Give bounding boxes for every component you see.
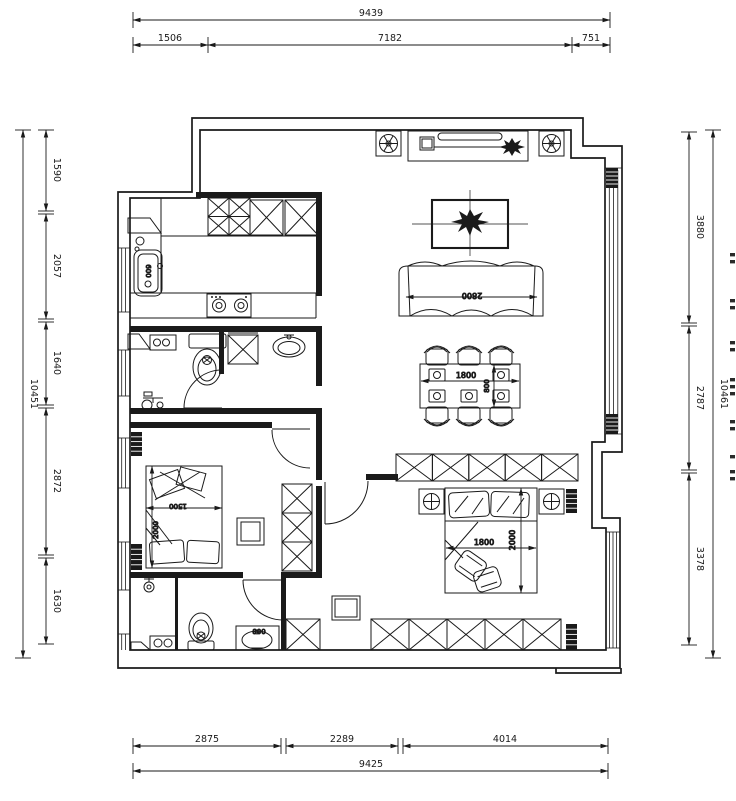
dim-top-overall: 9439 bbox=[359, 8, 383, 19]
kitchen-sink-label: 600 bbox=[144, 264, 152, 277]
dining-set: 1800 800 bbox=[420, 346, 520, 426]
tv-wall bbox=[376, 131, 564, 161]
floor-plan-page: 9439 1506 7182 751 2875 2289 4014 9425 1… bbox=[0, 0, 736, 801]
kitchen-cabinet-1 bbox=[250, 200, 283, 235]
radiator bbox=[566, 624, 577, 650]
window-master-bay bbox=[606, 532, 620, 648]
nightstand-right bbox=[539, 489, 564, 514]
sofa bbox=[399, 261, 543, 316]
dim-left-seg-3: 1640 bbox=[51, 351, 62, 375]
wall-kitchen-top bbox=[196, 192, 322, 198]
dimension-annotations-right: 3880 2787 3378 10461 bbox=[681, 130, 729, 658]
edge-text-fragments bbox=[730, 253, 735, 480]
bath2-corner-shelf bbox=[131, 642, 150, 650]
door-bathroom2 bbox=[243, 580, 283, 620]
dim-left-seg-1: 1590 bbox=[51, 158, 62, 182]
dim-left-seg-4: 2872 bbox=[51, 469, 62, 493]
wardrobe-box bbox=[282, 513, 312, 542]
wall-kitchen-living bbox=[316, 192, 322, 296]
dimension-annotations-bottom: 2875 2289 4014 9425 bbox=[133, 734, 608, 779]
kitchen-cabinet-2 bbox=[285, 200, 318, 235]
dim-right-seg-3: 3378 bbox=[694, 547, 705, 571]
master-wardrobe-bottom bbox=[371, 619, 561, 650]
dim-left-overall: 10451 bbox=[28, 379, 39, 409]
master-wardrobe-top bbox=[396, 454, 578, 481]
radiator bbox=[131, 432, 142, 456]
dining-width-label: 800 bbox=[483, 379, 491, 392]
radiator bbox=[566, 489, 577, 513]
dim-left-seg-2: 2057 bbox=[51, 254, 62, 278]
dim-left-seg-5: 1630 bbox=[51, 589, 62, 613]
bathroom-2: 800 bbox=[131, 576, 279, 650]
floor-plan-canvas: 9439 1506 7182 751 2875 2289 4014 9425 1… bbox=[0, 0, 736, 801]
wall-bedroom2-right bbox=[316, 486, 322, 578]
kitchen: 600 bbox=[128, 198, 318, 318]
dim-top-seg-1: 1506 bbox=[158, 33, 182, 44]
kitchen-stove bbox=[207, 294, 251, 317]
bed2-length-label: 2000 bbox=[152, 521, 160, 539]
plant-icon bbox=[451, 209, 489, 236]
dim-right-seg-1: 3880 bbox=[694, 215, 705, 239]
bath1-corner-shelf bbox=[128, 334, 150, 349]
wall-bedroom2-bath2-right bbox=[281, 572, 316, 578]
wardrobe-box bbox=[282, 484, 312, 513]
stool bbox=[332, 596, 360, 620]
interior-walls bbox=[130, 192, 398, 650]
sofa-width-label: 2800 bbox=[462, 291, 482, 300]
window-living-room bbox=[605, 168, 622, 434]
door-master-bedroom bbox=[325, 481, 368, 524]
bed2-width-label: 1500 bbox=[169, 502, 187, 510]
master-bed-width-label: 1800 bbox=[474, 538, 494, 547]
dimension-annotations-left: 10451 1590 2057 1640 2872 1630 bbox=[15, 130, 62, 658]
exterior-walls bbox=[118, 118, 622, 673]
wall-master-door-side bbox=[366, 474, 398, 480]
toilet-2 bbox=[188, 613, 214, 650]
wardrobe-box bbox=[282, 542, 312, 571]
wall-bath1-divider bbox=[219, 332, 224, 374]
dim-right-seg-2: 2787 bbox=[694, 386, 705, 410]
bath2-vanity-label: 800 bbox=[252, 628, 265, 636]
dim-bottom-seg-3: 4014 bbox=[493, 734, 517, 745]
wall-bath1-living bbox=[316, 332, 322, 386]
radiator bbox=[131, 544, 142, 570]
doors bbox=[184, 370, 368, 620]
dim-bottom-seg-1: 2875 bbox=[195, 734, 219, 745]
bath1-vanity-sink bbox=[273, 335, 305, 357]
door-bedroom2 bbox=[272, 429, 310, 468]
tv-icon bbox=[438, 133, 502, 140]
kitchen-cabinet-grid-bottom bbox=[208, 217, 250, 236]
cabinet-box bbox=[286, 619, 320, 650]
kitchen-cabinet-grid-top bbox=[208, 198, 250, 217]
wall-bedroom2-bath2-left bbox=[130, 572, 243, 578]
master-bedroom: 1800 2000 bbox=[286, 454, 578, 650]
pillow bbox=[149, 540, 184, 564]
dim-bottom-overall: 9425 bbox=[359, 759, 383, 770]
bath1-shower-fixture bbox=[142, 392, 163, 410]
wall-bedroom2-top bbox=[130, 422, 272, 428]
dim-right-overall: 10461 bbox=[718, 379, 729, 409]
door-bathroom1 bbox=[184, 370, 222, 408]
radiator bbox=[606, 414, 618, 434]
windows-left-wall bbox=[118, 248, 130, 650]
nightstand-left bbox=[419, 489, 444, 514]
bed-2 bbox=[146, 466, 222, 568]
living-room: 2800 bbox=[399, 190, 543, 316]
bath2-shower-fixture bbox=[144, 576, 158, 592]
wall-kitchen-bath1 bbox=[130, 326, 322, 332]
dim-bottom-seg-2: 2289 bbox=[330, 734, 354, 745]
pillow bbox=[491, 491, 530, 517]
washing-machine bbox=[228, 335, 258, 364]
wall-hallway bbox=[316, 408, 322, 480]
wall-bath1-bottom bbox=[130, 408, 322, 414]
radiator bbox=[606, 168, 618, 188]
pillow bbox=[448, 491, 489, 518]
coffee-table bbox=[412, 190, 528, 256]
dimension-annotations-top: 9439 1506 7182 751 bbox=[133, 8, 610, 53]
pillow bbox=[186, 540, 219, 564]
bathroom-1 bbox=[128, 333, 305, 410]
master-bed-length-label: 2000 bbox=[508, 530, 517, 550]
wall-bath2-master bbox=[281, 578, 286, 650]
kitchen-corner-shelf bbox=[128, 218, 161, 233]
dim-top-seg-3: 751 bbox=[582, 33, 600, 44]
dim-top-seg-2: 7182 bbox=[378, 33, 402, 44]
dining-length-label: 1800 bbox=[456, 371, 476, 380]
bedroom-2: 1500 2000 bbox=[146, 466, 312, 571]
plant-icon bbox=[499, 138, 525, 156]
